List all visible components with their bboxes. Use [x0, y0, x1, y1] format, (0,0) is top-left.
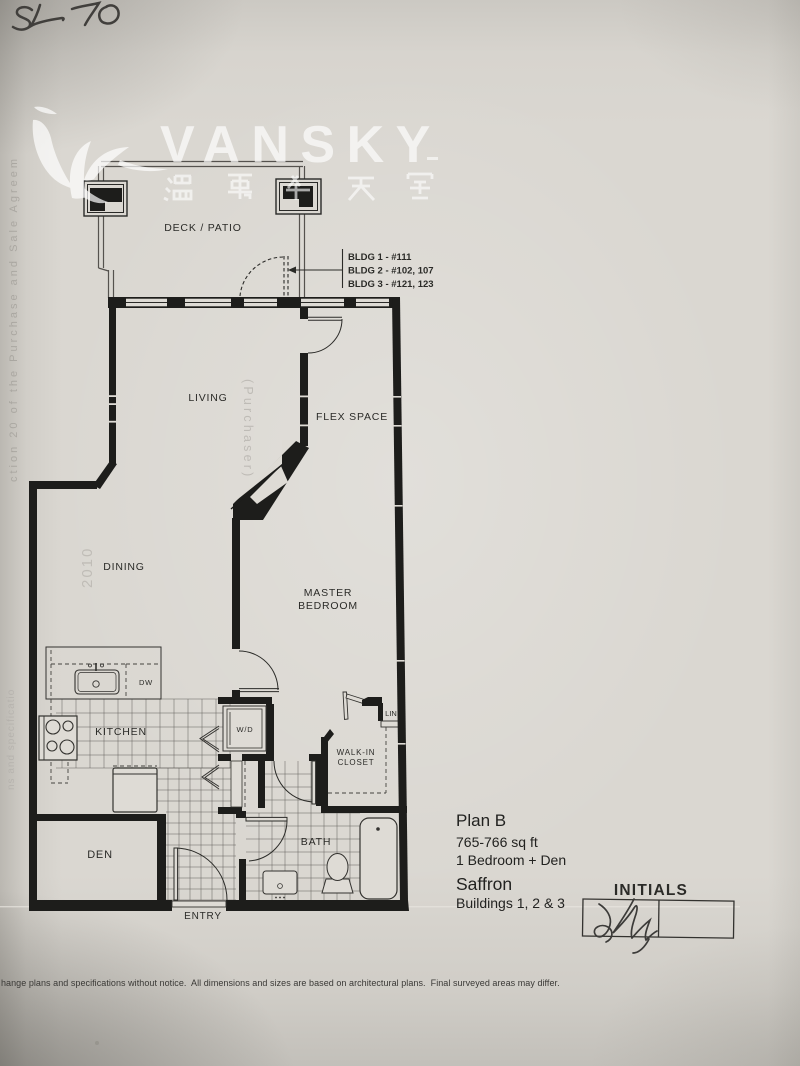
- svg-text:KITCHEN: KITCHEN: [95, 726, 147, 738]
- svg-text:BLDG 3 - #121, 123: BLDG 3 - #121, 123: [348, 279, 434, 290]
- svg-text:DINING: DINING: [103, 561, 145, 573]
- svg-text:WALK-IN: WALK-IN: [337, 748, 376, 757]
- svg-text:W/D: W/D: [237, 725, 254, 734]
- svg-text:LIN: LIN: [385, 709, 397, 718]
- svg-text:Saffron: Saffron: [456, 874, 512, 894]
- svg-text:Plan B: Plan B: [456, 811, 506, 830]
- svg-text:BEDROOM: BEDROOM: [298, 600, 358, 612]
- svg-text:DECK / PATIO: DECK / PATIO: [164, 222, 241, 234]
- svg-text:DW: DW: [139, 678, 153, 687]
- svg-text:MASTER: MASTER: [304, 587, 353, 599]
- svg-text:hange plans and specifications: hange plans and specifications without n…: [1, 978, 560, 988]
- svg-text:BLDG 1 - #111: BLDG 1 - #111: [348, 252, 412, 263]
- svg-text:ENTRY: ENTRY: [184, 911, 222, 922]
- svg-text:Buildings 1, 2 & 3: Buildings 1, 2 & 3: [456, 895, 565, 911]
- svg-text:FLEX SPACE: FLEX SPACE: [316, 411, 388, 423]
- svg-text:765-766 sq ft: 765-766 sq ft: [456, 834, 538, 850]
- svg-text:BATH: BATH: [301, 836, 331, 848]
- svg-text:2010: 2010: [79, 547, 96, 588]
- svg-text:LIVING: LIVING: [188, 392, 227, 404]
- svg-text:INITIALS: INITIALS: [614, 882, 688, 899]
- svg-text:BLDG 2 - #102, 107: BLDG 2 - #102, 107: [348, 266, 434, 277]
- svg-text:1 Bedroom + Den: 1 Bedroom + Den: [456, 852, 566, 868]
- svg-text:CLOSET: CLOSET: [338, 758, 375, 767]
- svg-text:DEN: DEN: [87, 849, 113, 861]
- svg-text:VANSKY: VANSKY: [160, 116, 442, 174]
- svg-text:(Purchaser): (Purchaser): [241, 379, 255, 480]
- svg-text:ns and specificatio: ns and specificatio: [6, 689, 17, 790]
- svg-text:ction 20 of the Purchase and S: ction 20 of the Purchase and Sale Agreem: [8, 156, 20, 482]
